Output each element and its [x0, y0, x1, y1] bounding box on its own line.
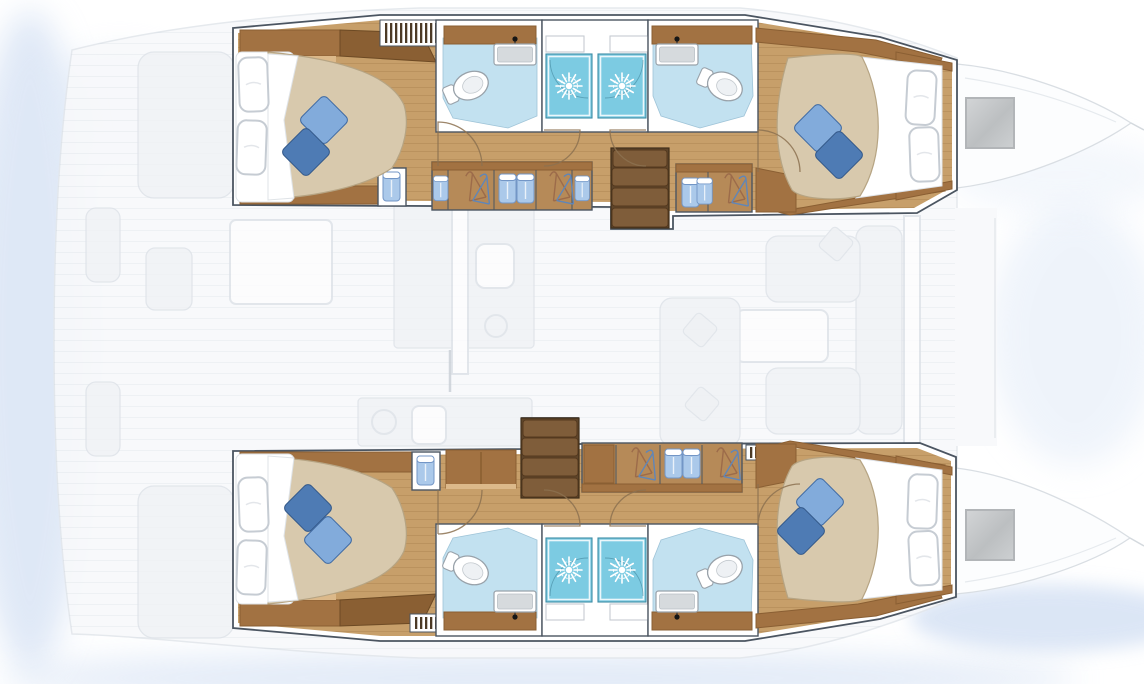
- pillow: [908, 530, 940, 585]
- cabinet-doors: [584, 445, 614, 483]
- transom-seat: [86, 382, 120, 456]
- shower-seat: [546, 604, 584, 620]
- pillow: [236, 120, 267, 175]
- garment-icon: [499, 174, 516, 203]
- foredeck: [955, 208, 997, 446]
- shower-seat: [610, 604, 648, 620]
- saloon-sofa-back: [856, 226, 902, 434]
- towel-icon: [383, 172, 400, 201]
- top-showers: [542, 20, 648, 132]
- garment-icon: [575, 176, 589, 201]
- top-forward-bed: [777, 54, 942, 199]
- garment-icon: [665, 449, 682, 478]
- bottom-forward-head: [648, 524, 758, 636]
- saloon-mullion: [452, 206, 468, 374]
- saloon-table: [736, 310, 828, 362]
- saloon-sofa-seat: [766, 368, 860, 434]
- vanity-shelf: [652, 612, 752, 630]
- bottom-aft-head: [436, 524, 542, 636]
- cockpit-bench: [138, 52, 234, 198]
- pillow: [236, 540, 267, 595]
- pillow: [238, 57, 269, 112]
- shower-seat: [610, 36, 648, 52]
- bottom-forward-bed: [776, 457, 942, 602]
- vanity-shelf: [444, 612, 536, 630]
- cockpit-table: [230, 220, 332, 304]
- pillow: [907, 474, 938, 529]
- towel-icon: [417, 456, 434, 485]
- vanity-shelf: [444, 26, 536, 44]
- bow-sprit-line: [1130, 538, 1144, 546]
- companionway-stairs: [611, 148, 669, 228]
- bottom-showers: [542, 524, 648, 636]
- shower-seat: [546, 36, 584, 52]
- floor-plan-canvas: [0, 0, 1144, 684]
- bow-sprit-line: [1131, 123, 1144, 130]
- top-aft-head: [436, 20, 542, 132]
- bow-window: [966, 510, 1014, 560]
- pillow: [905, 70, 937, 125]
- cockpit-bench: [138, 486, 234, 638]
- helm-seat: [146, 248, 192, 310]
- companionway-stairs: [521, 418, 579, 498]
- garment-icon: [434, 176, 448, 201]
- top-hull-cabins: [233, 15, 957, 229]
- saloon-front-wall: [904, 216, 920, 446]
- pillow: [909, 127, 940, 182]
- garment-icon: [517, 174, 534, 203]
- bow-bottom: [956, 468, 1144, 594]
- vanity-shelf: [652, 26, 752, 44]
- catamaran-floor-plan: [0, 0, 1144, 684]
- garment-icon: [697, 178, 712, 204]
- garment-icon: [683, 449, 700, 478]
- bow-window: [966, 98, 1014, 148]
- galley-sink: [412, 406, 446, 444]
- top-forward-head: [648, 20, 758, 132]
- pillow: [238, 477, 269, 532]
- galley-sink: [476, 244, 514, 288]
- garment-icon: [682, 178, 699, 207]
- bottom-hull-cabins: [233, 418, 956, 641]
- transom-seat: [86, 208, 120, 282]
